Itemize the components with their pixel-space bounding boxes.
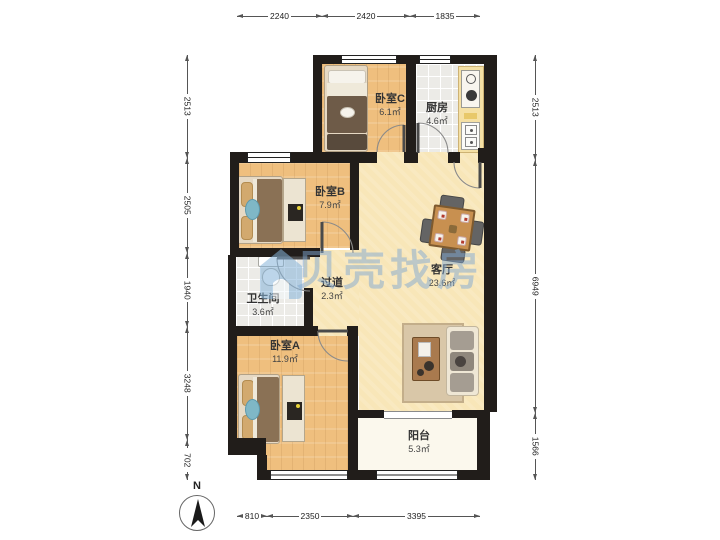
bed-decor — [245, 199, 260, 220]
wall — [458, 470, 490, 480]
window-balcony — [376, 470, 458, 480]
pillow-icon — [328, 70, 366, 84]
compass-circle — [179, 495, 215, 531]
room-name: 卧室B — [304, 186, 356, 200]
room-name: 厨房 — [407, 102, 467, 116]
sofa-icon — [446, 326, 479, 396]
dim-left-3: 1940 — [181, 253, 193, 327]
dim-bottom-2: 2350 — [267, 511, 353, 521]
bed-decor — [245, 399, 260, 420]
wall — [230, 152, 239, 255]
dim-right-3: 1566 — [529, 413, 541, 480]
dining-table-icon — [428, 204, 475, 251]
room-area: 4.6㎡ — [407, 116, 467, 127]
wall — [358, 410, 384, 418]
bedroom-b-wardrobe-icon — [283, 178, 306, 242]
wall — [448, 152, 460, 163]
tv-icon — [288, 204, 303, 221]
room-label-balcony: 阳台 5.3㎡ — [389, 430, 449, 455]
dim-right-1: 2513 — [529, 55, 541, 160]
dim-label: 2420 — [355, 12, 378, 21]
wall — [348, 470, 376, 480]
window-bedroom-b — [247, 152, 291, 163]
dim-label: 2513 — [183, 97, 192, 116]
dim-top-2: 2420 — [322, 11, 410, 21]
bed-footboard — [327, 134, 367, 150]
dim-left-2: 2505 — [181, 158, 193, 253]
dim-label: 1835 — [434, 12, 457, 21]
dim-label: 3248 — [183, 374, 192, 393]
wall — [478, 148, 497, 163]
dim-right-2: 6949 — [529, 160, 541, 413]
compass-north-label: N — [175, 480, 219, 493]
room-area: 3.6㎡ — [233, 307, 293, 318]
compass: N — [175, 480, 219, 534]
dim-top-3: 1835 — [410, 11, 480, 21]
room-area: 5.3㎡ — [389, 444, 449, 455]
dim-label: 702 — [183, 453, 192, 467]
watermark-text: 贝壳找房 — [296, 250, 484, 292]
dim-label: 2513 — [531, 98, 540, 117]
burner-plate — [466, 90, 477, 101]
window-bedroom-a — [270, 470, 348, 480]
burner-ring — [466, 74, 476, 84]
dim-label: 6949 — [531, 277, 540, 296]
dim-label: 3395 — [405, 512, 428, 521]
compass-needle-icon — [180, 496, 216, 532]
room-label-bedroom-a: 卧室A 11.9㎡ — [255, 340, 315, 365]
bedroom-b-bed-icon — [237, 176, 283, 244]
wall — [257, 470, 270, 480]
dim-label: 1566 — [531, 437, 540, 456]
sofa-cushion — [450, 373, 474, 392]
bedroom-a-wardrobe-icon — [282, 375, 305, 442]
dim-left-1: 2513 — [181, 55, 193, 158]
room-label-bedroom-b: 卧室B 7.9㎡ — [304, 186, 356, 211]
sofa-pillow — [455, 356, 466, 367]
wall — [228, 330, 237, 445]
sofa-cushion — [450, 331, 474, 350]
room-name: 卧室A — [255, 340, 315, 354]
wall — [404, 152, 418, 163]
dim-label: 2505 — [183, 196, 192, 215]
coffee-table-icon — [412, 337, 440, 381]
sink-basin — [465, 137, 477, 147]
wall — [484, 55, 497, 412]
dim-label: 2240 — [268, 12, 291, 21]
wall — [228, 438, 266, 455]
bed-decor — [340, 107, 355, 118]
dim-label: 1940 — [183, 281, 192, 300]
wall — [313, 55, 322, 163]
dim-label: 2350 — [299, 512, 322, 521]
bowl — [424, 361, 434, 371]
room-name: 阳台 — [389, 430, 449, 444]
bedroom-a-bed-icon — [238, 374, 280, 444]
bowl — [417, 369, 424, 376]
exterior-patch — [228, 455, 257, 480]
dim-top-1: 2240 — [237, 11, 322, 21]
tv-icon — [287, 402, 302, 420]
notepad — [418, 342, 431, 357]
wall — [228, 326, 318, 336]
room-label-kitchen: 厨房 4.6㎡ — [407, 102, 467, 127]
window-bedroom-c — [341, 55, 397, 64]
wall — [348, 330, 358, 480]
room-area: 7.9㎡ — [304, 200, 356, 211]
room-area: 11.9㎡ — [255, 354, 315, 365]
window-kitchen — [419, 55, 451, 64]
dim-left-5: 702 — [181, 440, 193, 480]
dim-left-4: 3248 — [181, 327, 193, 440]
dim-label: 810 — [243, 512, 261, 521]
dim-bottom-1: 810 — [237, 511, 267, 521]
floor-plan-canvas: 卧室C 6.1㎡ 厨房 4.6㎡ 卧室B 7.9㎡ 过道 2.3㎡ 客厅 23.… — [0, 0, 720, 540]
balcony-opening — [384, 411, 452, 419]
dim-bottom-3: 3395 — [353, 511, 480, 521]
